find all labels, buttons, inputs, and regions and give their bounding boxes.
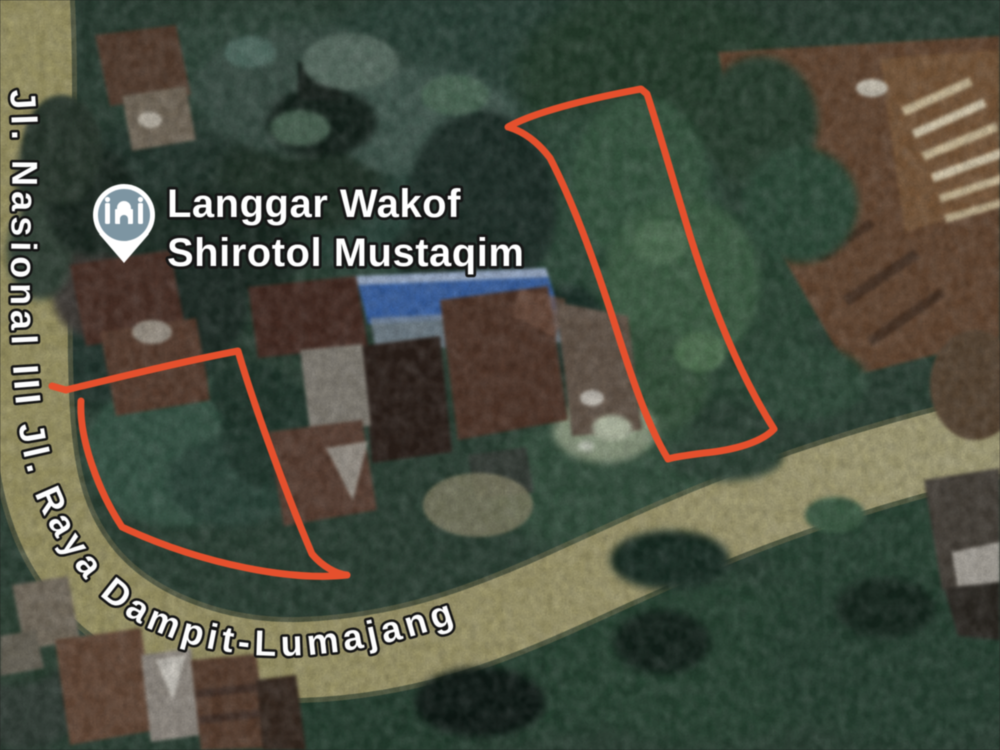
poi-label-line1[interactable]: Langgar Wakof: [167, 182, 461, 226]
map-viewport[interactable]: Jl. Nasional III Jl. Raya Dampit-Lumajan…: [0, 0, 1000, 750]
satellite-map-canvas[interactable]: Jl. Nasional III Jl. Raya Dampit-Lumajan…: [0, 0, 1000, 750]
poi-label-line2[interactable]: Shirotol Mustaqim: [167, 231, 524, 275]
